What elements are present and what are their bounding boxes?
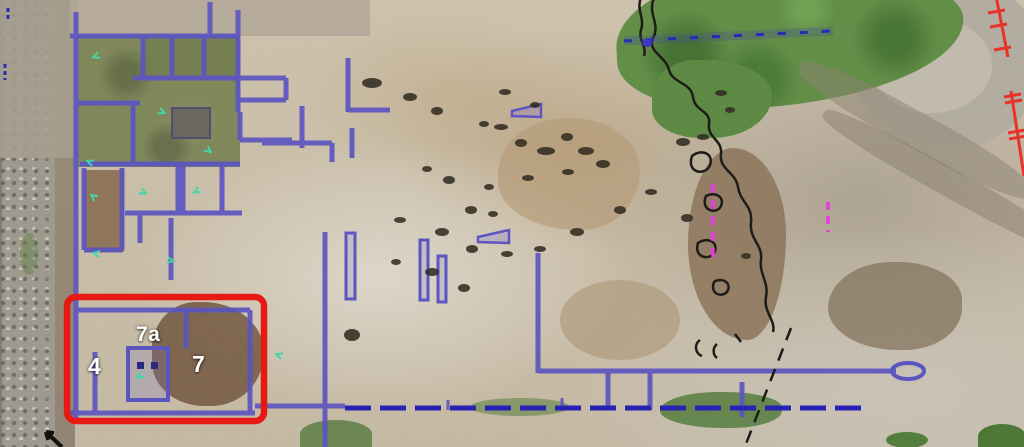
edge-survey-marks — [5, 8, 8, 80]
site-plan-overlay — [0, 0, 1024, 447]
survey-point-dot — [642, 39, 652, 47]
excavation-aerial-photo: 7a 4 7 — [0, 0, 1024, 447]
magenta-survey-lines — [713, 184, 828, 263]
room-label-7: 7 — [192, 353, 205, 376]
grass-survey-line — [5, 8, 833, 80]
wall-footing-outline — [438, 256, 446, 302]
room-label-4: 4 — [88, 355, 101, 378]
wall-plan-house-complex — [70, 2, 390, 420]
courtyard-pond — [172, 108, 210, 138]
wall-footing-outline — [346, 233, 355, 299]
hearth-basin-outline — [128, 348, 168, 400]
room-label-7a: 7a — [136, 324, 160, 345]
wall-end-loop — [892, 363, 924, 379]
trench-edge-tracing — [639, 0, 791, 447]
north-arrow-mark — [46, 432, 62, 447]
red-survey-staffs — [988, 0, 1024, 176]
basin-post-dot — [137, 362, 144, 369]
dashed-section-line — [744, 328, 791, 447]
pit-features — [344, 78, 751, 341]
flag-marker-icon — [478, 230, 509, 243]
basin-post-dot — [151, 362, 158, 369]
